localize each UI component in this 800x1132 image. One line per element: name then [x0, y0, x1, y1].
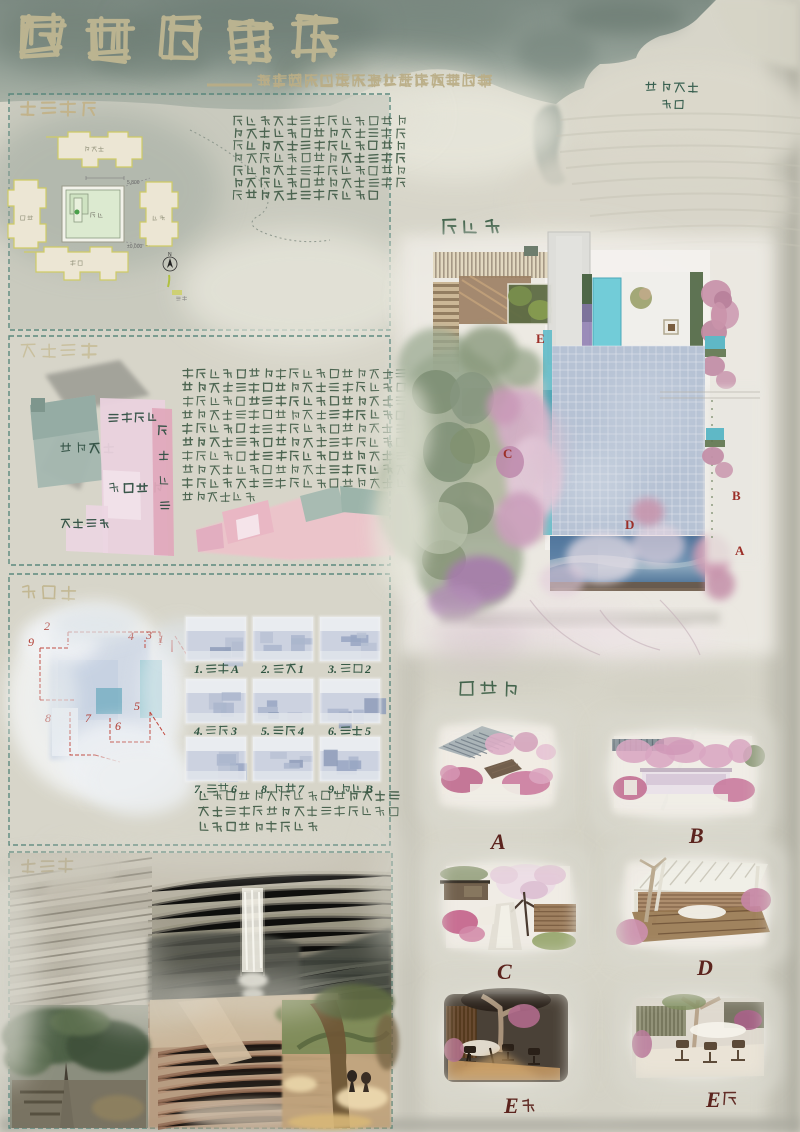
- svg-text:D: D: [696, 955, 713, 980]
- svg-text:C: C: [503, 446, 512, 461]
- svg-text:3: 3: [145, 628, 152, 642]
- svg-text:N: N: [168, 252, 172, 258]
- svg-text:2: 2: [364, 662, 371, 676]
- svg-text:C: C: [497, 959, 512, 984]
- svg-text:3: 3: [230, 724, 237, 738]
- svg-text:E: E: [536, 331, 545, 346]
- svg-text:5.: 5.: [261, 724, 270, 738]
- svg-text:B: B: [688, 823, 704, 848]
- svg-text:4: 4: [297, 724, 304, 738]
- svg-text:7: 7: [85, 711, 92, 725]
- svg-text:2.: 2.: [260, 662, 270, 676]
- svg-text:1: 1: [298, 662, 304, 676]
- svg-text:3.: 3.: [327, 662, 337, 676]
- svg-text:5: 5: [365, 724, 371, 738]
- svg-text:2: 2: [44, 619, 50, 633]
- svg-text:±0,000: ±0,000: [127, 244, 142, 250]
- svg-text:7.: 7.: [194, 782, 203, 796]
- svg-text:6.: 6.: [328, 724, 337, 738]
- svg-text:B: B: [732, 488, 741, 503]
- svg-text:5,800: 5,800: [127, 180, 140, 186]
- svg-text:6: 6: [231, 782, 237, 796]
- svg-text:1.: 1.: [194, 662, 203, 676]
- svg-text:A: A: [489, 829, 506, 854]
- svg-text:D: D: [625, 517, 634, 532]
- svg-text:E: E: [503, 1093, 519, 1118]
- svg-text:5: 5: [134, 699, 140, 713]
- svg-text:A: A: [230, 662, 239, 676]
- svg-text:E: E: [705, 1087, 721, 1112]
- svg-text:A: A: [735, 543, 745, 558]
- svg-text:4.: 4.: [193, 724, 203, 738]
- svg-text:6: 6: [115, 719, 121, 733]
- svg-text:9: 9: [28, 635, 34, 649]
